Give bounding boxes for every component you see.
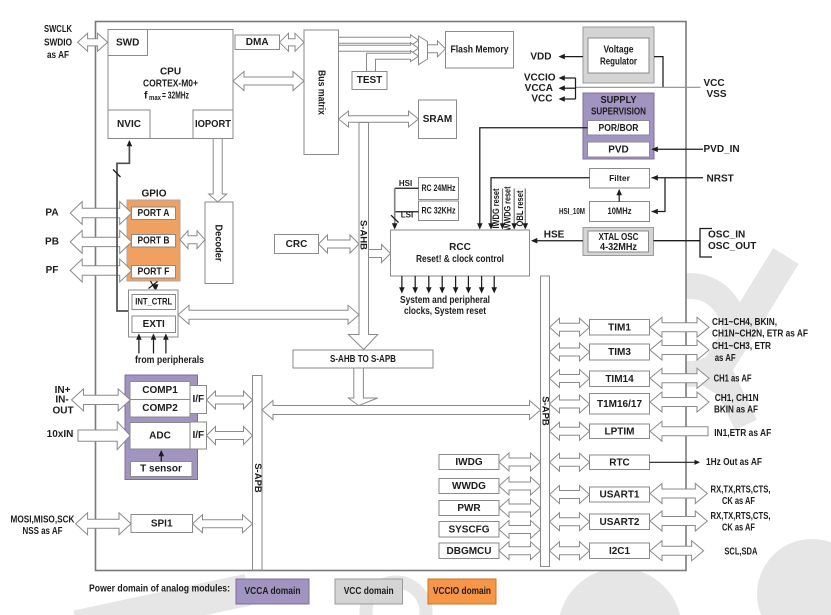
svg-text:Reset! & clock control: Reset! & clock control (416, 254, 504, 265)
svg-text:4-32MHz: 4-32MHz (600, 242, 637, 253)
svg-text:HSI: HSI (399, 179, 412, 188)
svg-text:ADC: ADC (149, 430, 171, 441)
svg-text:SPI1: SPI1 (151, 519, 173, 530)
svg-text:RC 24MHz: RC 24MHz (422, 183, 456, 193)
svg-text:NRST: NRST (707, 173, 734, 184)
svg-text:SCL,SDA: SCL,SDA (724, 546, 757, 557)
svg-text:PORT F: PORT F (138, 267, 170, 278)
svg-text:T sensor: T sensor (140, 464, 182, 475)
svg-text:VCC: VCC (704, 78, 725, 89)
svg-text:POR/BOR: POR/BOR (599, 123, 640, 134)
svg-text:S-AHB: S-AHB (357, 220, 368, 250)
svg-text:VSS: VSS (707, 89, 727, 100)
svg-text:OUT: OUT (52, 406, 73, 417)
svg-text:CK as AF: CK as AF (722, 496, 755, 507)
svg-text:Filter: Filter (609, 173, 630, 183)
svg-text:T1M16/17: T1M16/17 (597, 399, 642, 410)
svg-text:RC 32KHz: RC 32KHz (422, 205, 456, 215)
svg-text:SUPPLY: SUPPLY (601, 95, 637, 106)
svg-text:RCC: RCC (449, 242, 471, 253)
svg-text:SRAM: SRAM (423, 114, 452, 125)
svg-text:VCC: VCC (531, 94, 552, 105)
svg-text:IWDG reset: IWDG reset (491, 189, 501, 229)
svg-text:10xIN: 10xIN (47, 429, 74, 440)
svg-text:PVD: PVD (608, 145, 629, 156)
svg-text:CORTEX-M0+: CORTEX-M0+ (143, 79, 198, 90)
svg-text:OBL reset: OBL reset (515, 191, 525, 227)
svg-text:EXTI: EXTI (143, 319, 165, 330)
svg-text:CPU: CPU (160, 67, 181, 78)
svg-text:I2C1: I2C1 (609, 546, 631, 557)
svg-text:MOSI,MISO,SCK: MOSI,MISO,SCK (11, 515, 76, 526)
svg-text:10MHz: 10MHz (608, 206, 632, 217)
svg-text:VCCA domain: VCCA domain (245, 586, 301, 597)
svg-text:HSE: HSE (544, 230, 565, 241)
svg-text:System and peripheral: System and peripheral (400, 295, 490, 306)
svg-text:PORT A: PORT A (138, 208, 170, 219)
svg-text:DMA: DMA (246, 37, 269, 48)
svg-text:RTC: RTC (609, 457, 630, 468)
svg-text:Decoder: Decoder (213, 225, 224, 262)
svg-text:Bus matrix: Bus matrix (316, 70, 327, 115)
svg-text:LPTIM: LPTIM (605, 426, 635, 437)
svg-text:CH1~CH3, ETR: CH1~CH3, ETR (712, 341, 772, 352)
svg-text:PA: PA (45, 208, 58, 219)
svg-text:SUPERVISION: SUPERVISION (591, 107, 646, 118)
svg-text:TEST: TEST (357, 75, 383, 86)
svg-text:SWCLK: SWCLK (44, 24, 73, 35)
svg-text:TIM14: TIM14 (605, 374, 634, 385)
svg-text:IN-: IN- (55, 395, 68, 406)
svg-text:HSI_10M: HSI_10M (559, 206, 585, 216)
svg-text:as AF: as AF (47, 50, 69, 61)
svg-text:CH1, CH1N: CH1, CH1N (715, 393, 759, 404)
svg-text:INT_CTRL: INT_CTRL (135, 297, 172, 308)
svg-text:WWDG: WWDG (452, 481, 486, 492)
svg-text:PORT B: PORT B (138, 236, 170, 247)
svg-text:I/F: I/F (192, 394, 204, 405)
svg-text:BKIN as AF: BKIN as AF (714, 405, 758, 416)
svg-text:CK as AF: CK as AF (722, 522, 755, 533)
svg-text:f: f (144, 89, 148, 101)
svg-text:PWR: PWR (457, 503, 481, 514)
svg-text:Power domain of analog modules: Power domain of analog modules: (89, 584, 230, 595)
svg-text:clocks, System reset: clocks, System reset (404, 306, 487, 317)
svg-text:WWDG reset: WWDG reset (503, 187, 513, 231)
svg-text:VDD: VDD (530, 52, 551, 63)
svg-text:VCCIO domain: VCCIO domain (433, 586, 491, 597)
svg-text:Regulator: Regulator (600, 57, 637, 68)
svg-text:PF: PF (46, 265, 59, 276)
svg-text:Flash Memory: Flash Memory (451, 45, 509, 56)
svg-text:S-AHB TO S-APB: S-AHB TO S-APB (330, 354, 396, 365)
svg-text:IN1,ETR as AF: IN1,ETR as AF (714, 428, 771, 439)
svg-text:RX,TX,RTS,CTS,: RX,TX,RTS,CTS, (711, 511, 771, 522)
svg-text:IOPORT: IOPORT (195, 119, 231, 130)
svg-text:OSC_IN: OSC_IN (708, 230, 745, 241)
svg-text:SYSCFG: SYSCFG (448, 524, 489, 535)
svg-text:S-APB: S-APB (252, 463, 263, 493)
svg-text:RX,TX,RTS,CTS,: RX,TX,RTS,CTS, (711, 485, 771, 496)
svg-text:S-APB: S-APB (539, 396, 550, 426)
svg-text:CH1N~CH2N, ETR as AF: CH1N~CH2N, ETR as AF (712, 329, 808, 340)
svg-text:GPIO: GPIO (141, 189, 166, 200)
svg-text:max: max (149, 95, 161, 102)
svg-text:CH1~CH4, BKIN,: CH1~CH4, BKIN, (712, 317, 777, 328)
svg-text:CRC: CRC (286, 239, 308, 250)
svg-text:SWDIO: SWDIO (44, 38, 72, 49)
svg-text:from peripherals: from peripherals (135, 355, 204, 366)
svg-text:COMP2: COMP2 (142, 403, 178, 414)
svg-text:COMP1: COMP1 (142, 385, 178, 396)
svg-text:PB: PB (45, 237, 59, 248)
svg-text:TIM1: TIM1 (608, 322, 631, 333)
svg-text:CH1 as AF: CH1 as AF (714, 373, 752, 384)
svg-text:= 32MHz: = 32MHz (162, 89, 189, 101)
svg-text:VCC domain: VCC domain (344, 586, 394, 597)
svg-text:SWD: SWD (116, 38, 139, 49)
svg-text:I/F: I/F (192, 430, 204, 441)
svg-text:TIM3: TIM3 (608, 347, 631, 358)
svg-text:NSS as AF: NSS as AF (23, 526, 63, 537)
svg-text:VCCA: VCCA (525, 83, 553, 94)
svg-text:NVIC: NVIC (117, 119, 141, 130)
svg-text:Voltage: Voltage (604, 45, 634, 56)
svg-text:OSC_OUT: OSC_OUT (708, 241, 756, 252)
svg-text:USART2: USART2 (599, 517, 639, 528)
svg-text:IWDG: IWDG (455, 457, 482, 468)
svg-text:1Hz Out as AF: 1Hz Out as AF (706, 457, 762, 468)
svg-text:PVD_IN: PVD_IN (704, 144, 740, 155)
svg-text:as AF: as AF (715, 353, 736, 364)
svg-text:USART1: USART1 (599, 490, 639, 501)
svg-text:DBGMCU: DBGMCU (447, 546, 492, 557)
